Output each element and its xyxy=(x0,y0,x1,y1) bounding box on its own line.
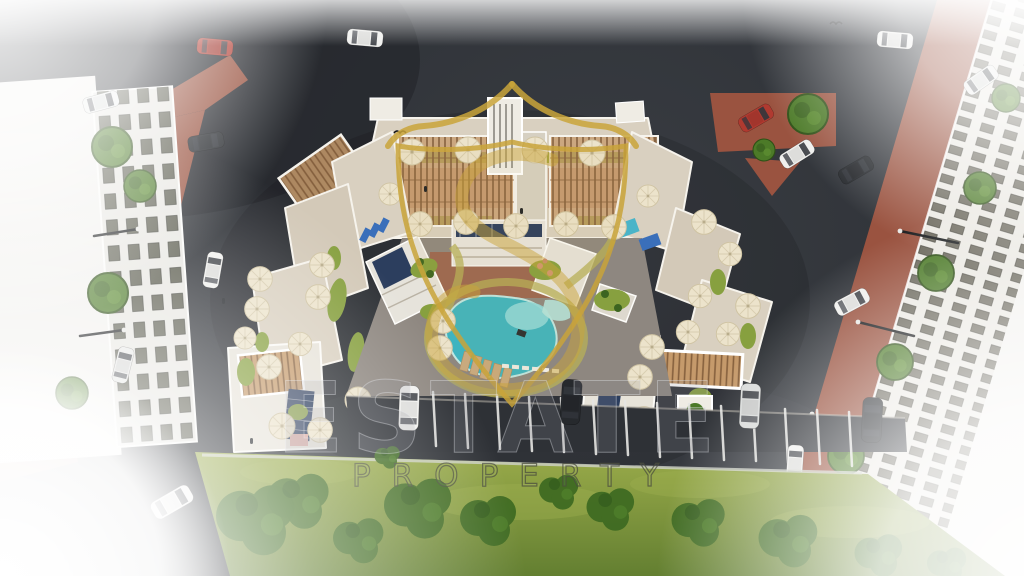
fog-top-band xyxy=(0,0,1024,46)
scene-svg: ESTATE PROPERTY xyxy=(0,0,1024,576)
aerial-render-image: ESTATE PROPERTY xyxy=(0,0,1024,576)
fog-overlay xyxy=(0,0,1024,576)
fog-top-right xyxy=(0,0,1024,576)
